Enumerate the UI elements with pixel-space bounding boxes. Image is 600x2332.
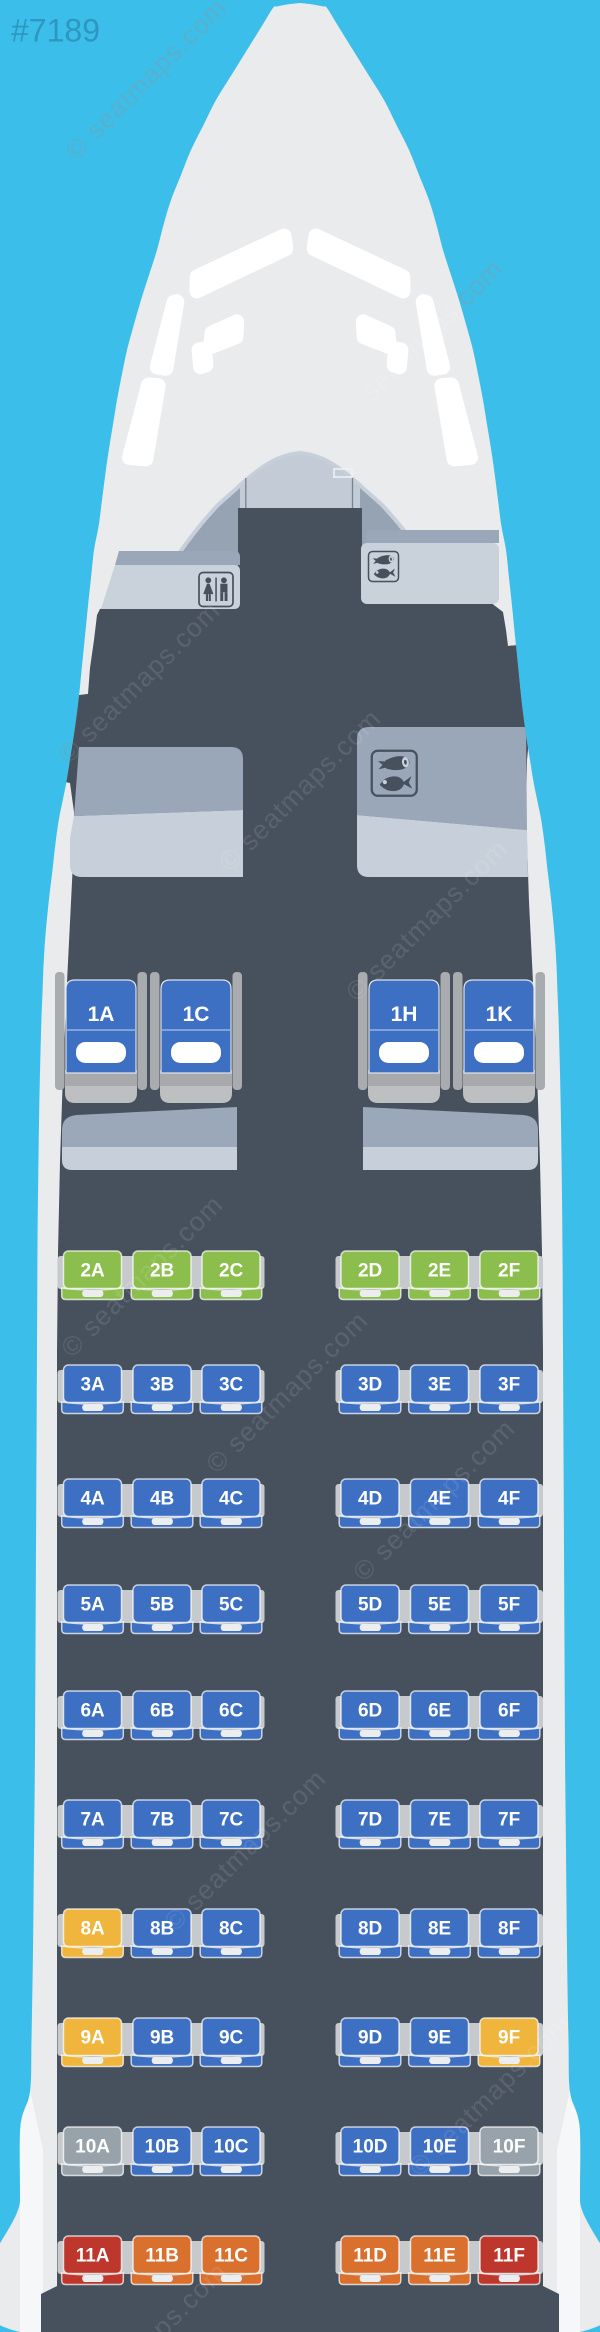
svg-text:3F: 3F <box>498 1375 520 1396</box>
svg-text:5C: 5C <box>219 1595 244 1616</box>
svg-text:9F: 9F <box>498 2028 520 2049</box>
svg-text:6E: 6E <box>428 1701 451 1722</box>
svg-text:10B: 10B <box>145 2137 180 2158</box>
svg-text:1A: 1A <box>88 1003 115 1026</box>
svg-text:10F: 10F <box>493 2137 526 2158</box>
svg-text:5B: 5B <box>150 1595 174 1616</box>
svg-text:6F: 6F <box>498 1701 520 1722</box>
svg-text:8D: 8D <box>358 1919 382 1940</box>
svg-text:11B: 11B <box>145 2246 179 2267</box>
svg-text:6B: 6B <box>150 1701 174 1722</box>
svg-text:4F: 4F <box>498 1489 520 1510</box>
svg-text:7F: 7F <box>498 1810 520 1831</box>
svg-text:10C: 10C <box>214 2137 249 2158</box>
svg-text:1K: 1K <box>486 1003 513 1026</box>
svg-text:5F: 5F <box>498 1595 520 1616</box>
svg-text:9A: 9A <box>80 2028 105 2049</box>
svg-text:2F: 2F <box>498 1261 520 1282</box>
svg-text:1H: 1H <box>391 1003 418 1026</box>
svg-text:11A: 11A <box>76 2246 110 2267</box>
svg-text:11E: 11E <box>423 2246 456 2267</box>
svg-text:5A: 5A <box>80 1595 105 1616</box>
svg-text:4C: 4C <box>219 1489 244 1510</box>
svg-text:6D: 6D <box>358 1701 382 1722</box>
svg-text:11F: 11F <box>493 2246 525 2267</box>
svg-text:4A: 4A <box>80 1489 105 1510</box>
svg-text:4B: 4B <box>150 1489 174 1510</box>
svg-text:3C: 3C <box>219 1375 244 1396</box>
svg-text:7B: 7B <box>150 1810 174 1831</box>
svg-text:6C: 6C <box>219 1701 244 1722</box>
svg-text:9D: 9D <box>358 2028 382 2049</box>
svg-text:7D: 7D <box>358 1810 382 1831</box>
svg-text:5E: 5E <box>428 1595 451 1616</box>
svg-text:2C: 2C <box>219 1261 244 1282</box>
svg-text:9C: 9C <box>219 2028 244 2049</box>
svg-text:3B: 3B <box>150 1375 174 1396</box>
svg-text:7C: 7C <box>219 1810 244 1831</box>
svg-text:1C: 1C <box>183 1003 210 1026</box>
svg-text:8F: 8F <box>498 1919 520 1940</box>
svg-text:11D: 11D <box>353 2246 387 2267</box>
svg-text:11C: 11C <box>214 2246 248 2267</box>
svg-text:#7189: #7189 <box>11 13 100 49</box>
svg-text:2A: 2A <box>80 1261 105 1282</box>
svg-text:3D: 3D <box>358 1375 382 1396</box>
svg-text:8C: 8C <box>219 1919 244 1940</box>
svg-text:10A: 10A <box>75 2137 110 2158</box>
svg-text:2E: 2E <box>428 1261 451 1282</box>
svg-text:7E: 7E <box>428 1810 451 1831</box>
svg-text:4D: 4D <box>358 1489 382 1510</box>
svg-text:8E: 8E <box>428 1919 451 1940</box>
svg-text:5D: 5D <box>358 1595 382 1616</box>
svg-text:9B: 9B <box>150 2028 174 2049</box>
svg-text:2D: 2D <box>358 1261 382 1282</box>
svg-text:3A: 3A <box>80 1375 105 1396</box>
svg-text:7A: 7A <box>80 1810 105 1831</box>
svg-text:6A: 6A <box>80 1701 105 1722</box>
svg-text:9E: 9E <box>428 2028 451 2049</box>
svg-text:10D: 10D <box>353 2137 388 2158</box>
svg-text:8A: 8A <box>80 1919 105 1940</box>
svg-text:3E: 3E <box>428 1375 451 1396</box>
